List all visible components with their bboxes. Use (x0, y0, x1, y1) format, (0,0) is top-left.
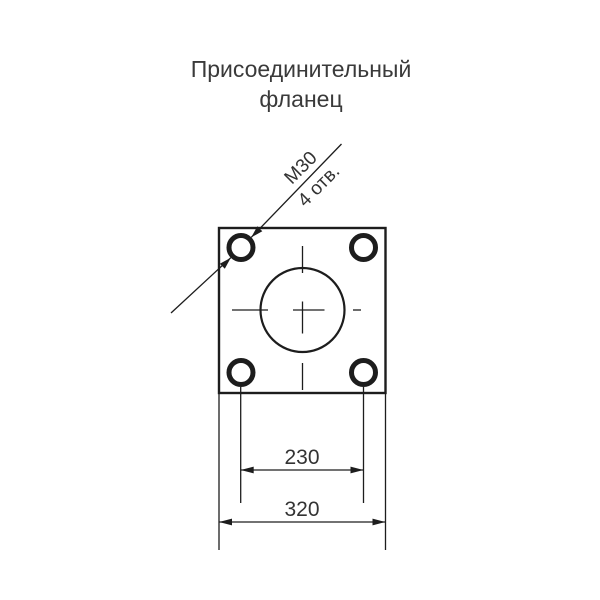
dimension-value-flange-width: 320 (284, 498, 319, 521)
dimension-arrowhead-320-right (373, 519, 386, 526)
drawing-title-line2: фланец (259, 86, 342, 112)
bolt-hole-bottom-right (352, 361, 376, 385)
dimension-value-bolt-spacing: 230 (284, 446, 319, 469)
flange-drawing: Присоединительный фланец М3 (0, 0, 600, 600)
dimension-flange-width: 320 (219, 394, 386, 550)
bolt-hole-bottom-left (229, 361, 253, 385)
technical-drawing-page: Присоединительный фланец М3 (0, 0, 600, 600)
bolt-hole-top-left (229, 236, 253, 260)
bolt-hole-top-right (352, 236, 376, 260)
drawing-title-line1: Присоединительный (191, 56, 412, 82)
dimension-bolt-spacing: 230 (241, 387, 364, 503)
dimension-arrowhead-320-left (219, 519, 232, 526)
leader-line-lower-segment (171, 258, 231, 313)
dimension-arrowhead-230-right (351, 467, 364, 474)
dimension-arrowhead-230-left (241, 467, 254, 474)
